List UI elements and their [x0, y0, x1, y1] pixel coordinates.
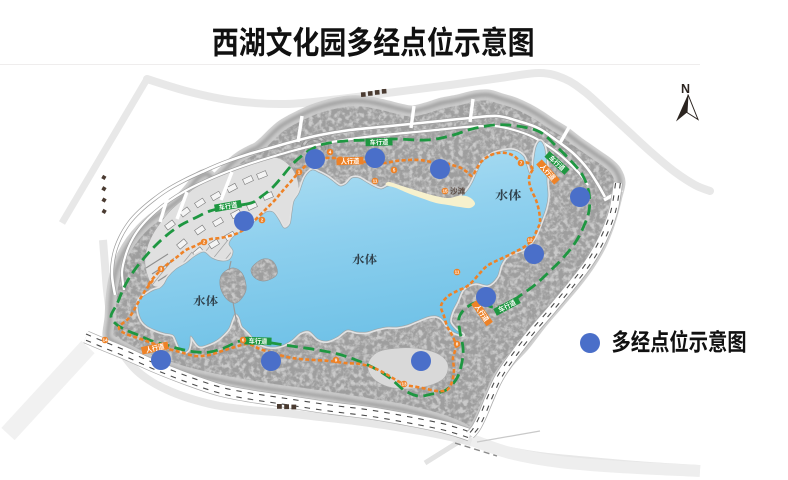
- svg-text:12: 12: [527, 238, 533, 243]
- svg-text:N: N: [681, 82, 690, 96]
- svg-text:15: 15: [442, 189, 448, 194]
- svg-text:4: 4: [329, 150, 332, 155]
- svg-text:6: 6: [242, 338, 245, 343]
- svg-text:13: 13: [401, 382, 407, 387]
- svg-text:14: 14: [102, 338, 108, 343]
- svg-text:5: 5: [393, 168, 396, 173]
- svg-text:3: 3: [160, 267, 163, 272]
- svg-text:11: 11: [373, 179, 378, 184]
- svg-text:2: 2: [261, 218, 264, 223]
- svg-text:9: 9: [335, 358, 338, 363]
- svg-text:8: 8: [456, 342, 459, 347]
- svg-text:2: 2: [203, 240, 206, 245]
- svg-text:1: 1: [298, 170, 301, 175]
- svg-text:11: 11: [455, 270, 460, 275]
- svg-text:7: 7: [520, 161, 523, 166]
